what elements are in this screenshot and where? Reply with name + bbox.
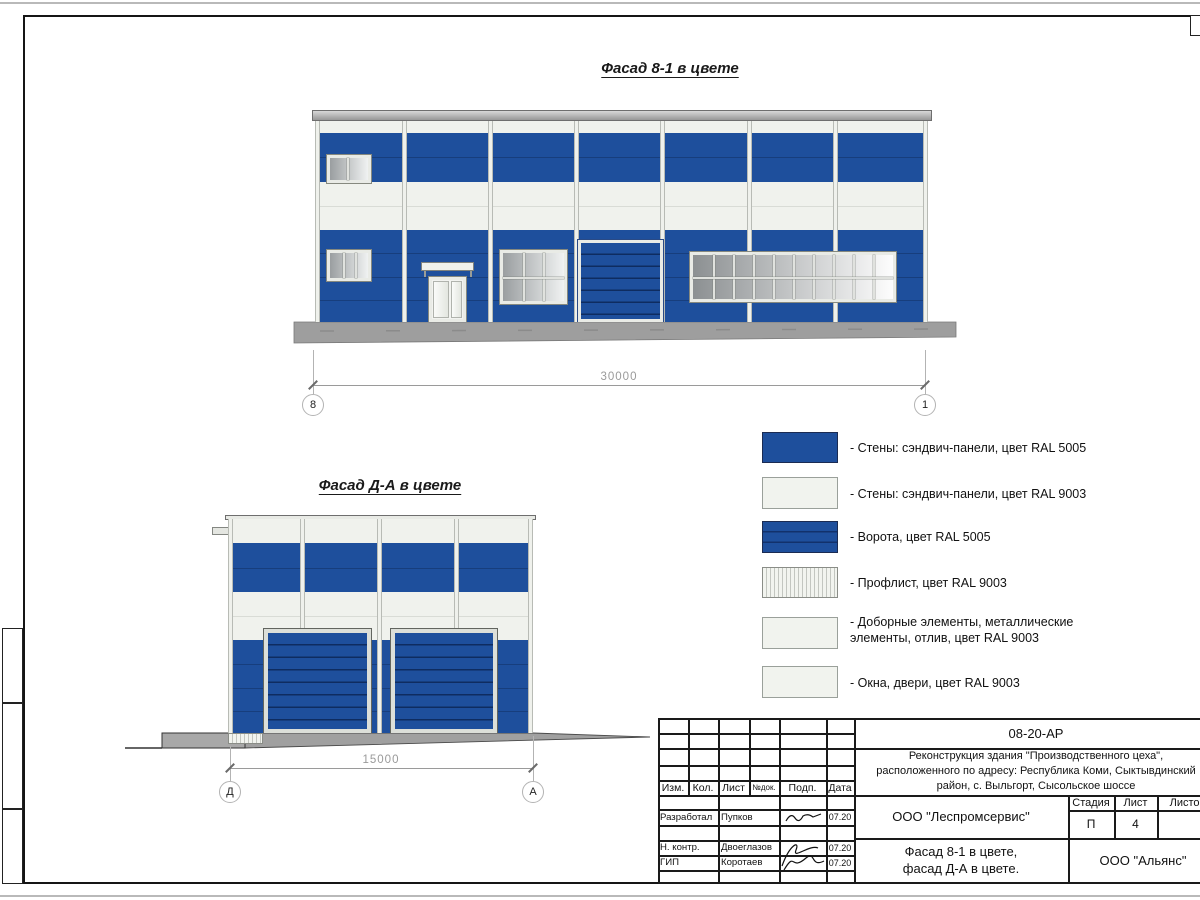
dimension-value: 15000 — [331, 754, 431, 766]
window-mullion — [343, 253, 345, 278]
facade-8-1-drawing — [312, 110, 932, 322]
facade-8-1-wall — [315, 121, 928, 322]
window-transom — [693, 277, 893, 279]
tb-date: 07.20 — [826, 809, 854, 825]
door-leaf — [433, 281, 449, 318]
tb-doc-code: 08-20-АР — [854, 720, 1200, 747]
drawing-sheet: Фасад 8-1 в цвете — [0, 0, 1200, 900]
tb-drawing-name: Фасад 8-1 в цвете, фасад Д-А в цвете. — [854, 838, 1068, 882]
parapet-coping — [312, 110, 932, 121]
extension-line — [313, 350, 314, 394]
axis-bubble-d: Д — [219, 781, 241, 803]
window-mullion — [347, 158, 349, 180]
tb-col-kol: Кол. — [688, 780, 718, 795]
title-block: Изм. Кол. Лист №док. Подп. Дата Разработ… — [658, 718, 1200, 884]
side-stamp-box — [2, 809, 23, 884]
window-mullion — [355, 253, 357, 278]
tb-company: ООО "Альянс" — [1068, 838, 1200, 882]
legend-label: - Профлист, цвет RAL 9003 — [850, 575, 1007, 591]
tb-line — [718, 718, 720, 884]
dimension-line — [230, 768, 533, 769]
tb-project-name: Реконструкция здания "Производственного … — [854, 749, 1200, 794]
tb-role: ГИП — [660, 855, 718, 870]
tb-name: Двоеглазов — [721, 840, 778, 855]
tb-listov-label: Листов — [1157, 795, 1200, 810]
tb-date: 07.20 — [826, 855, 854, 870]
tb-stage-label: Стадия — [1068, 795, 1114, 810]
side-stamp-box — [2, 628, 23, 703]
sectional-gate-right — [391, 629, 497, 733]
extension-line — [230, 746, 231, 781]
corner-trim — [228, 519, 233, 733]
wall-mullion — [377, 519, 382, 733]
tb-list-label: Лист — [1114, 795, 1157, 810]
sectional-gate — [578, 240, 663, 322]
corner-trim — [315, 121, 320, 322]
legend-label: - Доборные элементы, металлические элеме… — [850, 614, 1073, 646]
tb-role: Разработал — [660, 809, 718, 825]
wall-mullion — [402, 121, 407, 322]
side-stamp-box — [2, 703, 23, 809]
tb-stage-value: П — [1068, 810, 1114, 838]
tb-col-ndok: №док. — [749, 780, 779, 795]
facade-d-a-drawing — [225, 515, 536, 733]
tb-sheet-number: 4 — [1114, 810, 1157, 838]
tb-org: ООО "Леспромсервис" — [854, 795, 1068, 838]
tb-name: Пупков — [721, 809, 778, 825]
corner-trim — [528, 519, 533, 733]
axis-bubble-1: 1 — [914, 394, 936, 416]
entrance-canopy — [421, 262, 474, 271]
sheet-bottom-edge — [0, 895, 1200, 897]
legend-swatch-proflist — [762, 567, 838, 598]
legend-label: - Стены: сэндвич-панели, цвет RAL 5005 — [850, 440, 1086, 456]
wall-mullion — [488, 121, 493, 322]
legend-label: - Ворота, цвет RAL 5005 — [850, 529, 991, 545]
signature — [776, 836, 828, 874]
legend-swatch-flashings — [762, 617, 838, 649]
legend-swatch-walls-blue — [762, 432, 838, 463]
tb-col-list: Лист — [718, 780, 749, 795]
extension-line — [533, 736, 534, 781]
facade-d-a-title: Фасад Д-А в цвете — [260, 477, 520, 494]
proflist-plinth — [228, 733, 263, 744]
tb-line — [658, 882, 1200, 884]
tb-col-data: Дата — [826, 780, 854, 795]
tb-date: 07.20 — [826, 840, 854, 855]
legend-swatch-gates — [762, 521, 838, 553]
sheet-top-edge — [0, 2, 1200, 4]
tb-col-podp: Подп. — [779, 780, 826, 795]
legend-swatch-walls-white — [762, 477, 838, 509]
legend-label: - Окна, двери, цвет RAL 9003 — [850, 675, 1020, 691]
ribbon-window — [690, 252, 896, 302]
corner-trim — [923, 121, 928, 322]
tb-line — [658, 795, 854, 797]
facade-8-1-title: Фасад 8-1 в цвете — [540, 60, 800, 77]
small-window-upper — [327, 155, 371, 183]
ground-facade-8-1 — [290, 320, 960, 348]
door-leaf — [451, 281, 462, 318]
drain-outlet — [212, 527, 229, 535]
axis-bubble-8: 8 — [302, 394, 324, 416]
entrance-door — [429, 277, 466, 322]
corner-stamp-box — [1190, 15, 1200, 36]
legend-swatch-windows-doors — [762, 666, 838, 698]
dimension-line — [313, 385, 925, 386]
window-transom — [503, 277, 564, 279]
tb-role: Н. контр. — [660, 840, 718, 855]
facade-d-a-wall — [228, 519, 533, 733]
extension-line — [925, 350, 926, 394]
axis-bubble-a: А — [522, 781, 544, 803]
dimension-value: 30000 — [569, 371, 669, 383]
sectional-gate-left — [264, 629, 371, 733]
tb-col-izm: Изм. — [658, 780, 688, 795]
legend-label: - Стены: сэндвич-панели, цвет RAL 9003 — [850, 486, 1086, 502]
canopy-post — [470, 271, 472, 277]
tb-line — [658, 825, 854, 827]
signature — [782, 810, 824, 825]
tb-name: Коротаев — [721, 855, 778, 870]
small-window-lower — [327, 250, 371, 281]
canopy-post — [424, 271, 426, 277]
workshop-window — [500, 250, 567, 304]
